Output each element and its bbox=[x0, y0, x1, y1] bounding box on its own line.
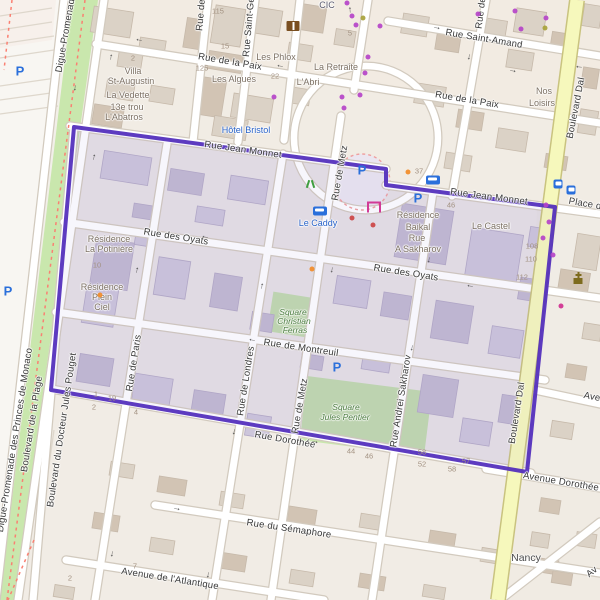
housenumber-label: 2 bbox=[68, 574, 72, 583]
poi-label: L'Abatros bbox=[105, 112, 143, 122]
poi-dot-icon bbox=[272, 95, 277, 100]
housenumber-label: 4 bbox=[134, 408, 138, 417]
housenumber-label: 19 bbox=[108, 394, 116, 403]
poi-dot-icon bbox=[371, 223, 376, 228]
poi-label: 13e trou bbox=[110, 102, 143, 112]
oneway-arrow-icon: → bbox=[204, 570, 214, 580]
tram-stop-icon bbox=[313, 207, 327, 216]
street-name-label: Rue de Londres bbox=[235, 345, 257, 416]
oneway-arrow-icon: → bbox=[230, 427, 240, 437]
poi-label: Les Algues bbox=[212, 74, 256, 84]
poi-label: St-Augustin bbox=[108, 76, 155, 86]
poi-label: Les Phlox bbox=[256, 52, 296, 62]
poi-label: A Sakharov bbox=[395, 244, 441, 254]
housenumber-label: 1 bbox=[94, 390, 98, 399]
bus-stop-icon bbox=[567, 186, 576, 195]
poi-dot-icon bbox=[358, 93, 363, 98]
oneway-arrow-icon: → bbox=[508, 65, 518, 75]
poi-label: La Retraite bbox=[314, 62, 358, 72]
street-name-label: Rue de Metz bbox=[330, 144, 351, 201]
poi-dot-icon bbox=[366, 55, 371, 60]
street-name-label: Rue Dorothée bbox=[254, 429, 317, 451]
oneway-arrow-icon: → bbox=[71, 83, 81, 93]
oneway-arrow-icon: → bbox=[275, 62, 285, 72]
poi-dot-icon bbox=[513, 9, 518, 14]
oneway-arrow-icon: → bbox=[256, 281, 266, 291]
poi-dot-icon bbox=[476, 12, 481, 17]
street-name-label: Ave bbox=[583, 390, 600, 404]
oneway-arrow-icon: → bbox=[134, 36, 144, 46]
poi-dot-icon bbox=[350, 216, 355, 221]
poi-label: La Vedette bbox=[106, 90, 149, 100]
street-name-label: Boulevard Dal bbox=[507, 381, 528, 444]
housenumber-label: 52 bbox=[418, 460, 426, 469]
parking-icon: P bbox=[358, 164, 367, 177]
poi-dot-icon bbox=[559, 304, 564, 309]
street-name-label: Rue Jean Monnet bbox=[450, 186, 529, 207]
parking-icon: P bbox=[414, 192, 423, 205]
housenumber-label: 5 bbox=[348, 29, 352, 38]
poi-label: Résidence bbox=[81, 282, 124, 292]
poi-label: Le Castel bbox=[472, 221, 510, 231]
bus-stop-icon bbox=[554, 180, 563, 189]
housenumber-label: 2 bbox=[131, 54, 135, 63]
street-name-label: Rue de bbox=[194, 0, 208, 31]
poi-label: Résidence bbox=[397, 210, 440, 220]
oneway-arrow-icon: → bbox=[310, 436, 320, 446]
poi-label: Rue bbox=[409, 233, 426, 243]
poi-label: Villa bbox=[125, 66, 142, 76]
oneway-arrow-icon: → bbox=[328, 265, 338, 275]
housenumber-label: 15 bbox=[221, 42, 229, 51]
poi-dot-icon bbox=[98, 293, 103, 298]
tram-stop-icon bbox=[426, 176, 440, 185]
housenumber-label: 58 bbox=[418, 448, 426, 457]
street-name-label: Rue de Metz bbox=[290, 377, 311, 434]
street-name-label: Rue Saint-Amand bbox=[445, 27, 524, 51]
oneway-arrow-icon: → bbox=[108, 549, 118, 559]
street-name-label: Av bbox=[584, 564, 600, 580]
poi-dot-icon bbox=[361, 16, 366, 21]
housenumber-label: 46 bbox=[365, 452, 373, 461]
street-name-label: Rue Saint-Ge bbox=[241, 0, 257, 57]
park-name-label: Square bbox=[332, 402, 359, 412]
poi-dot-icon bbox=[541, 236, 546, 241]
poi-label: CIC bbox=[319, 0, 335, 10]
oneway-arrow-icon: → bbox=[172, 503, 182, 513]
housenumber-label: 115 bbox=[212, 7, 224, 16]
park-name-label: Ferras bbox=[283, 325, 308, 335]
street-name-label: Boulevard du Docteur Jules Pouget bbox=[45, 352, 79, 508]
housenumber-label: 2 bbox=[92, 403, 96, 412]
street-name-label: Rue du Sémaphore bbox=[246, 517, 332, 541]
parking-icon: P bbox=[333, 361, 342, 374]
parking-icon: P bbox=[16, 65, 25, 78]
poi-dot-icon bbox=[544, 16, 549, 21]
poi-label: Baikal bbox=[406, 222, 431, 232]
housenumber-label: 108 bbox=[526, 242, 539, 251]
poi-label: Hôtel Bristol bbox=[222, 125, 271, 135]
housenumber-label: 46 bbox=[447, 201, 455, 210]
oneway-arrow-icon: → bbox=[574, 63, 584, 73]
park-name-label: Jules Pentier bbox=[320, 412, 369, 422]
street-name-label: Rue des Oyats bbox=[143, 226, 209, 247]
street-name-label: Rue Andrei Sakharov bbox=[388, 354, 414, 448]
street-name-label: Rue des Oyats bbox=[373, 262, 439, 283]
poi-dot-icon bbox=[340, 95, 345, 100]
poi-dot-icon bbox=[544, 203, 549, 208]
street-name-label: Rue de Paris bbox=[124, 334, 144, 392]
street-name-label: Boulevard Dal bbox=[565, 76, 588, 139]
map-canvas[interactable]: Rue Saint-AmandRue de la PaixRue de la P… bbox=[0, 0, 600, 600]
housenumber-label: 110 bbox=[525, 255, 537, 264]
housenumber-label: 37 bbox=[415, 167, 423, 176]
poi-dot-icon bbox=[350, 14, 355, 19]
poi-dot-icon bbox=[519, 27, 524, 32]
library-icon bbox=[287, 21, 300, 31]
poi-dot-icon bbox=[354, 23, 359, 28]
housenumber-label: 125 bbox=[196, 64, 209, 73]
housenumber-label: 112 bbox=[516, 273, 528, 282]
oneway-arrow-icon: → bbox=[465, 282, 475, 292]
poi-dot-icon bbox=[345, 1, 350, 6]
housenumber-label: 44 bbox=[347, 447, 355, 456]
poi-dot-icon bbox=[363, 71, 368, 76]
poi-dot-icon bbox=[551, 253, 556, 258]
poi-dot-icon bbox=[543, 26, 548, 31]
poi-dot-icon bbox=[310, 267, 315, 272]
poi-dot-icon bbox=[547, 220, 552, 225]
poi-label: Résidence bbox=[88, 234, 131, 244]
oneway-arrow-icon: → bbox=[408, 343, 418, 353]
monument-icon bbox=[367, 202, 381, 213]
poi-label: La Potinière bbox=[85, 244, 133, 254]
poi-label: Nos bbox=[536, 86, 552, 96]
church-icon bbox=[574, 278, 583, 284]
street-name-label: Rue Jean Monnet bbox=[204, 139, 283, 161]
poi-dot-icon bbox=[406, 170, 411, 175]
poi-label: L'Abri bbox=[297, 77, 320, 87]
poi-dot-icon bbox=[342, 106, 347, 111]
parking-icon: P bbox=[4, 285, 13, 298]
poi-dot-icon bbox=[378, 24, 383, 29]
oneway-arrow-icon: → bbox=[105, 52, 115, 62]
street-name-label: Place d bbox=[568, 196, 600, 213]
oneway-arrow-icon: → bbox=[465, 52, 475, 62]
housenumber-label: 58 bbox=[448, 465, 456, 474]
oneway-arrow-icon: → bbox=[425, 255, 435, 265]
oneway-arrow-icon: → bbox=[88, 152, 98, 162]
poi-label: Le Caddy bbox=[299, 218, 338, 228]
housenumber-label: 57 bbox=[462, 457, 470, 466]
oneway-arrow-icon: → bbox=[200, 233, 210, 243]
housenumber-label: 7 bbox=[133, 562, 137, 571]
poi-label: Ciel bbox=[94, 302, 110, 312]
street-name-label: Rue de la Paix bbox=[434, 89, 500, 111]
housenumber-label: 22 bbox=[271, 72, 279, 81]
poi-label: Loisirs bbox=[529, 98, 555, 108]
oneway-arrow-icon: → bbox=[247, 336, 257, 346]
place-name-label: Nancy bbox=[511, 552, 541, 564]
playground-icon bbox=[304, 179, 316, 189]
oneway-arrow-icon: → bbox=[131, 265, 141, 275]
map-annotations: Rue Saint-AmandRue de la PaixRue de la P… bbox=[0, 0, 600, 600]
oneway-arrow-icon: → bbox=[432, 22, 442, 32]
street-name-label: Digue-Promenade bbox=[54, 0, 79, 73]
street-name-label: Avenue Dorothée bbox=[522, 470, 600, 494]
street-name-label: Rue de Montreuil bbox=[263, 337, 339, 359]
housenumber-label: 10 bbox=[93, 261, 101, 270]
